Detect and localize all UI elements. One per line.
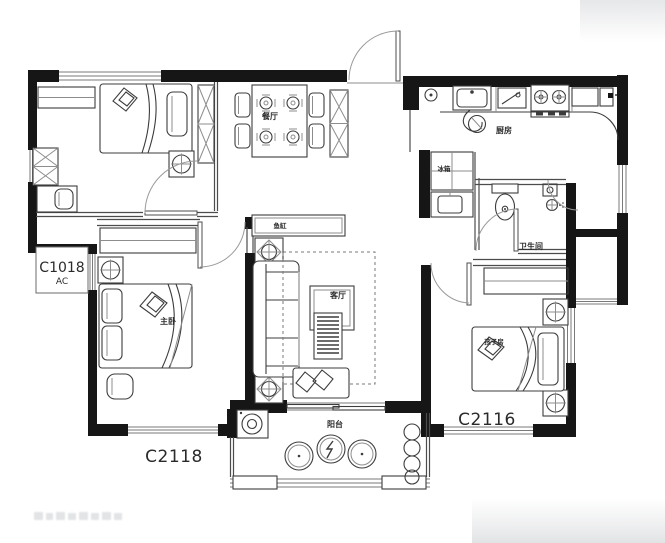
label-living: 客厅 <box>329 290 346 300</box>
dining-chair <box>309 93 324 117</box>
planter-icon <box>255 375 283 403</box>
nightstand-icon <box>98 257 123 283</box>
bed-kids <box>472 327 564 391</box>
bed-master <box>99 284 192 368</box>
window-code-ac: AC <box>56 277 68 287</box>
fridge-unit <box>431 152 473 217</box>
sofa <box>253 261 299 377</box>
dining-chair <box>309 124 324 148</box>
striped-rug <box>314 313 342 359</box>
label-kitchen: 厨房 <box>496 125 512 135</box>
sideboard-icon <box>330 90 348 157</box>
label-fridge: 冰箱 <box>438 164 452 173</box>
stool-icon <box>107 374 133 399</box>
ac-platform: C1018 AC <box>36 247 88 293</box>
label-master-bedroom: 主卧 <box>160 316 176 326</box>
bed-secondary <box>100 84 192 153</box>
label-balcony: 阳台 <box>327 419 343 429</box>
floor-plan-image: C1018 AC <box>0 0 665 543</box>
window-c2118 <box>128 424 218 436</box>
dining-chair <box>235 124 250 148</box>
label-fish-tank: 鱼缸 <box>274 221 288 230</box>
label-bathroom: 卫生间 <box>519 241 543 251</box>
fish-tank <box>252 215 345 236</box>
nightstand-icon <box>543 390 568 416</box>
label-dining: 餐厅 <box>261 111 278 121</box>
nightstand-icon <box>169 151 194 177</box>
edge-shade-top-right <box>580 0 665 42</box>
window-code-c1018: C1018 <box>39 260 84 276</box>
washing-machine-icon <box>237 410 268 438</box>
bench-with-pillows <box>293 368 349 398</box>
wardrobe-left-icon <box>33 148 58 185</box>
floor-plan-svg: C1018 AC <box>0 0 665 543</box>
counter-block <box>572 88 598 106</box>
room-dining <box>235 85 348 157</box>
window-right-connector <box>576 297 617 306</box>
balcony-sliding-door <box>287 401 385 413</box>
edge-shade-bottom-right <box>472 498 665 543</box>
dining-table <box>252 85 307 157</box>
desk-and-chair <box>37 186 77 212</box>
nightstand-icon <box>543 299 568 325</box>
wardrobe-right-icon <box>198 85 214 163</box>
window-code-c2116: C2116 <box>458 410 516 430</box>
window-bathroom-right <box>617 165 628 213</box>
label-kids-room: 孩子房 <box>484 337 504 346</box>
window-c1018 <box>88 254 97 290</box>
window-top-left <box>59 70 161 82</box>
dining-chair <box>235 93 250 117</box>
window-code-c2118: C2118 <box>145 447 203 467</box>
cutting-board-icon <box>498 88 526 108</box>
